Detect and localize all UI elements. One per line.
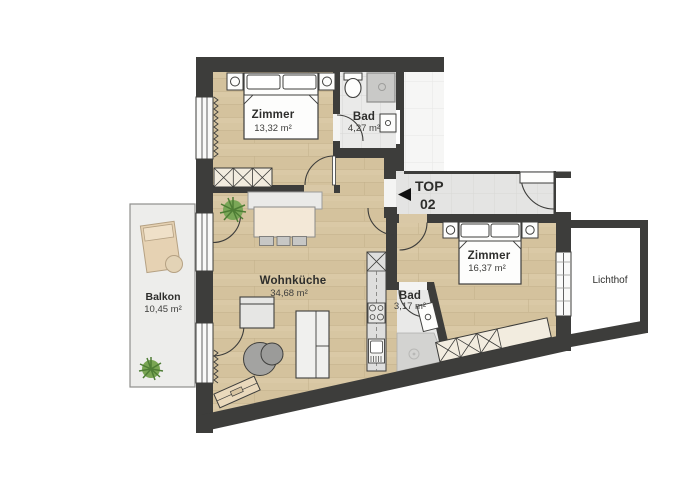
- svg-text:Balkon: Balkon: [145, 291, 180, 303]
- svg-text:16,37 m²: 16,37 m²: [468, 263, 506, 274]
- svg-text:Wohnküche: Wohnküche: [260, 275, 327, 287]
- svg-text:34,68 m²: 34,68 m²: [270, 288, 308, 299]
- svg-text:10,45 m²: 10,45 m²: [144, 304, 182, 315]
- svg-text:02: 02: [420, 196, 436, 212]
- svg-text:3,17 m²: 3,17 m²: [394, 301, 426, 312]
- svg-text:4,27 m²: 4,27 m²: [348, 123, 380, 134]
- svg-text:Zimmer: Zimmer: [468, 250, 511, 262]
- svg-text:Lichthof: Lichthof: [592, 275, 627, 286]
- svg-text:TOP: TOP: [415, 178, 444, 194]
- svg-text:13,32 m²: 13,32 m²: [254, 123, 292, 134]
- svg-text:Zimmer: Zimmer: [252, 109, 295, 121]
- svg-text:Bad: Bad: [353, 111, 375, 123]
